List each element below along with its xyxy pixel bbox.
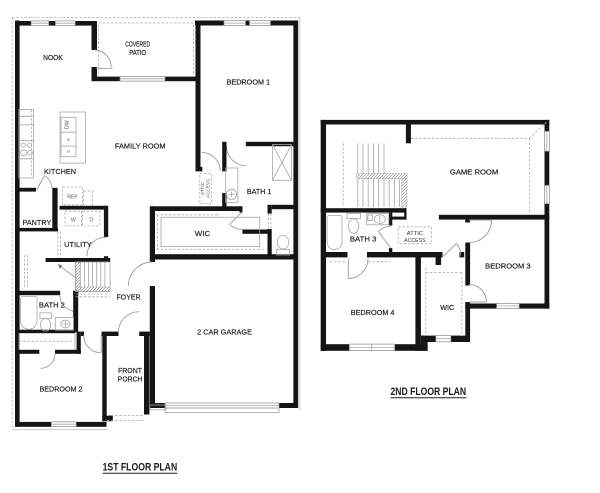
svg-text:PANTRY: PANTRY: [23, 218, 52, 227]
svg-text:ACCESS: ACCESS: [404, 238, 426, 244]
svg-text:1ST FLOOR PLAN: 1ST FLOOR PLAN: [103, 461, 178, 473]
svg-text:FOYER: FOYER: [117, 292, 142, 301]
svg-text:ATTIC: ATTIC: [407, 231, 424, 237]
svg-text:2 CAR GARAGE: 2 CAR GARAGE: [197, 328, 252, 337]
svg-text:BATH 1: BATH 1: [247, 187, 272, 196]
svg-text:KITCHEN: KITCHEN: [44, 167, 76, 176]
svg-text:WIC: WIC: [440, 303, 454, 312]
svg-text:COVERED: COVERED: [125, 39, 150, 48]
svg-text:UTILITY: UTILITY: [64, 240, 92, 249]
svg-text:W: W: [71, 217, 76, 223]
svg-text:BEDROOM 4: BEDROOM 4: [351, 308, 395, 317]
svg-text:BATH 2: BATH 2: [39, 300, 65, 309]
svg-text:BATH 3: BATH 3: [350, 235, 377, 244]
svg-text:ATTIC: ATTIC: [200, 181, 205, 195]
svg-text:REF: REF: [67, 194, 77, 200]
svg-text:GAME ROOM: GAME ROOM: [450, 168, 498, 177]
svg-text:ACCESS: ACCESS: [205, 179, 210, 198]
svg-text:PORCH: PORCH: [118, 374, 143, 383]
svg-text:PATIO: PATIO: [129, 48, 146, 57]
svg-text:D: D: [89, 217, 93, 223]
svg-text:NOOK: NOOK: [43, 53, 63, 62]
svg-text:2ND FLOOR PLAN: 2ND FLOOR PLAN: [391, 386, 467, 398]
svg-text:WIC: WIC: [195, 229, 211, 238]
svg-text:BEDROOM 3: BEDROOM 3: [485, 261, 530, 270]
svg-text:BEDROOM 2: BEDROOM 2: [40, 385, 83, 394]
svg-text:DW: DW: [65, 120, 71, 129]
svg-text:FAMILY ROOM: FAMILY ROOM: [115, 141, 166, 150]
svg-text:BEDROOM 1: BEDROOM 1: [227, 78, 271, 87]
